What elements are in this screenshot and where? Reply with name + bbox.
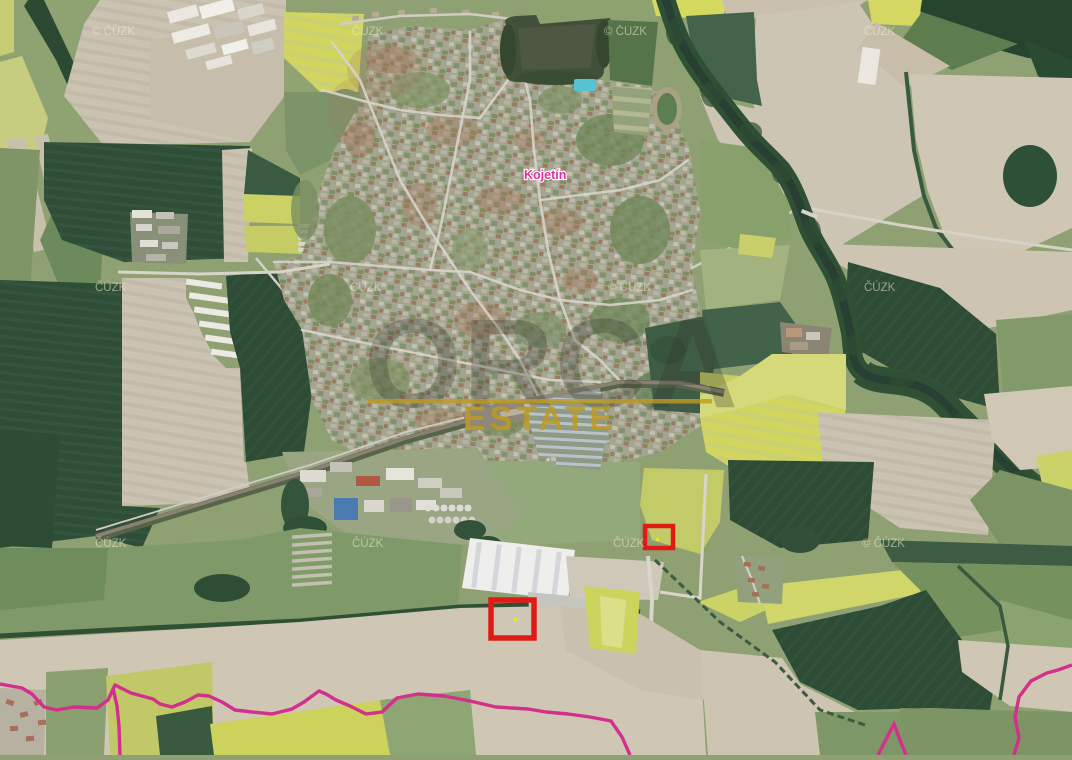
svg-text:ČÚZK: ČÚZK [352,25,384,38]
svg-text:© ČÚZK: © ČÚZK [862,537,905,550]
svg-text:ČÚZK: ČÚZK [352,537,384,550]
svg-text:© ČÚZK: © ČÚZK [92,25,135,38]
svg-text:ČÚZK: ČÚZK [613,537,645,550]
svg-text:ČÚZK: ČÚZK [864,25,896,38]
svg-text:ČÚZK: ČÚZK [350,281,382,294]
svg-text:Kojetín: Kojetín [524,168,566,182]
svg-text:ČÚZK: ČÚZK [864,281,896,294]
svg-text:ČÚZK: ČÚZK [95,537,127,550]
svg-text:© ČÚZK: © ČÚZK [604,25,647,38]
svg-text:© ČÚZK: © ČÚZK [608,281,651,294]
svg-text:ESTATE: ESTATE [463,400,616,438]
svg-text:ČÚZK: ČÚZK [95,281,127,294]
